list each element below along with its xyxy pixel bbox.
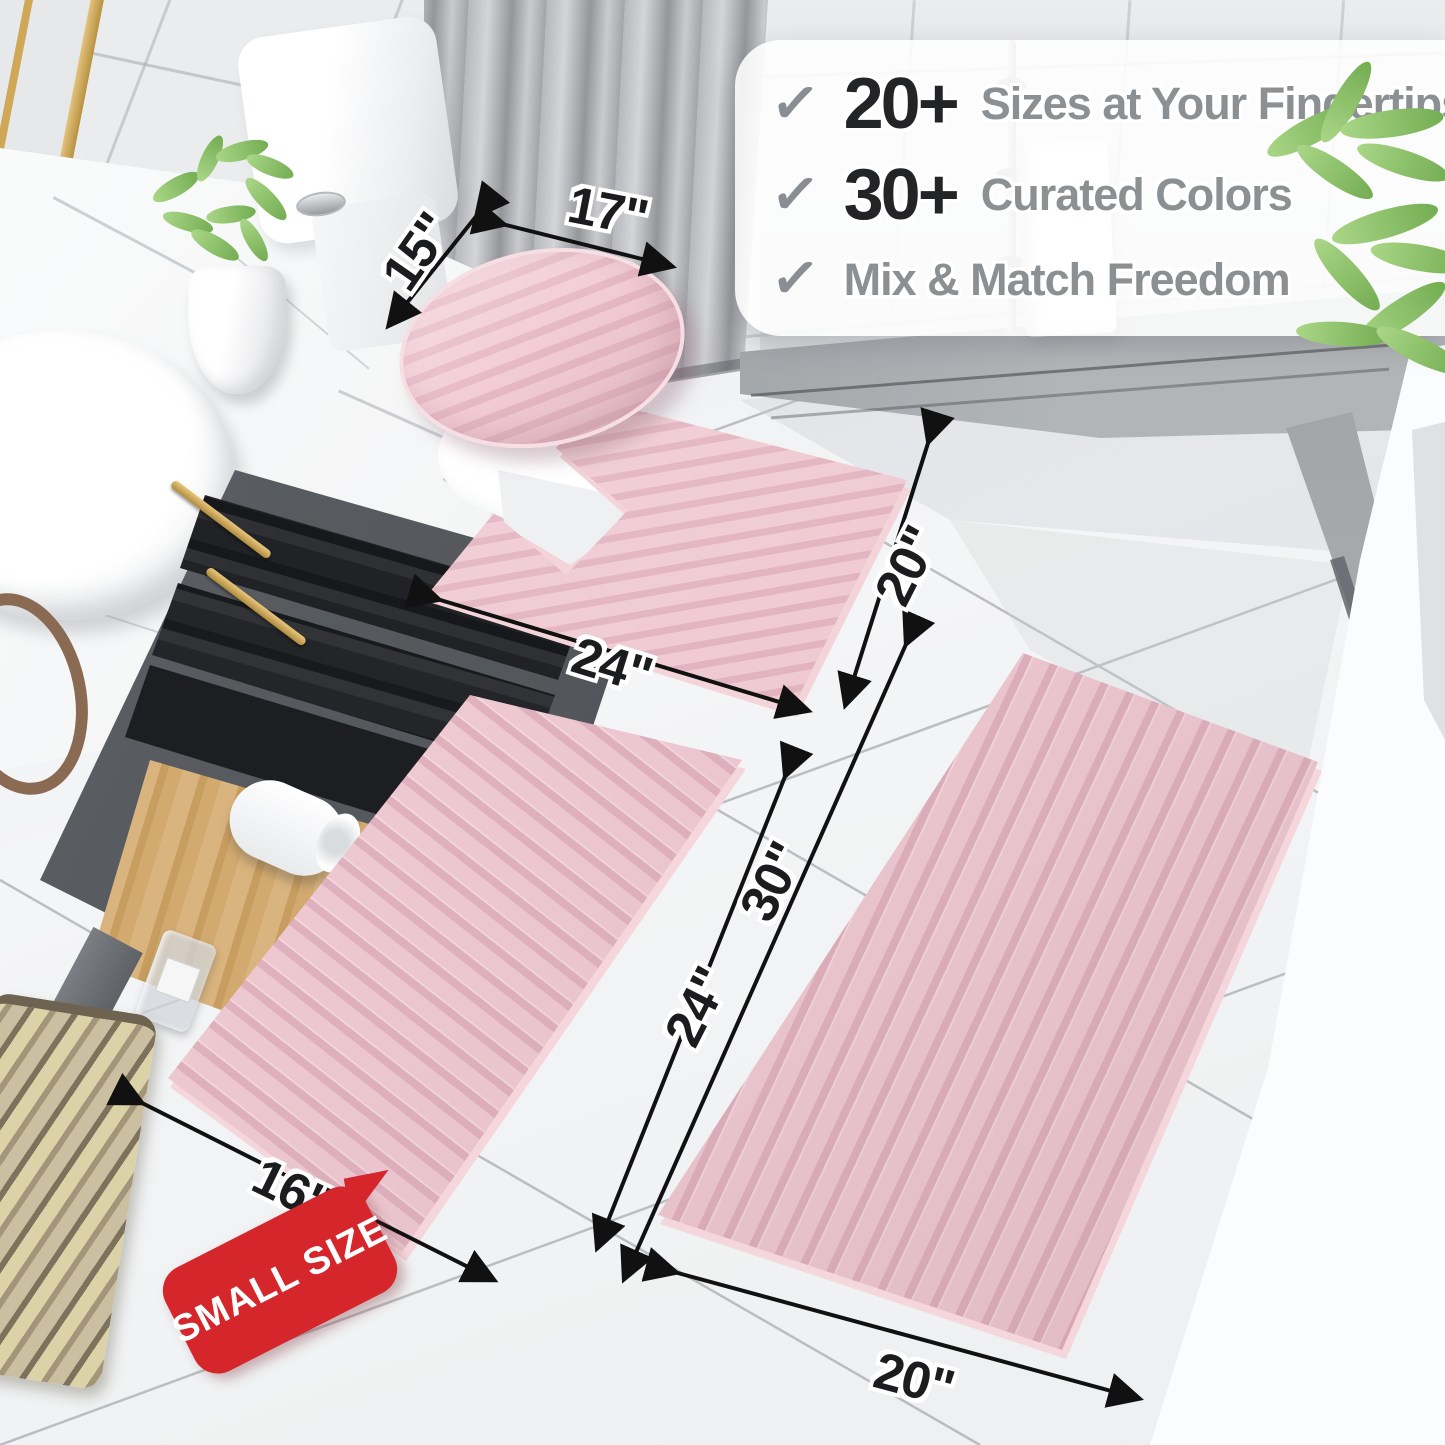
vanity-handle-top (170, 479, 273, 560)
rolled-towel (217, 767, 357, 888)
vanity-leg-right (378, 1051, 465, 1208)
vanity-leg-left (0, 927, 143, 1134)
toilet-bowl (438, 388, 658, 523)
product-image: ✓ 20+ Sizes at Your Fingertips ✓ 30+ Cur… (0, 0, 1445, 1445)
counter-plant-pot (188, 266, 286, 394)
dim-label-lid-length: 17" (563, 175, 652, 249)
rattan-hoop (0, 580, 106, 807)
tub-deck-streak-2 (771, 368, 1389, 420)
tub-deck-streak (751, 342, 1409, 397)
laundry-basket (0, 991, 159, 1391)
marble-vein-2 (230, 252, 369, 369)
check-icon: ✓ (768, 164, 822, 227)
toilet-flush-button (295, 189, 348, 220)
rolled-towel-end (307, 807, 369, 880)
dim-label-contour-width: 24" (565, 626, 659, 707)
marble-vein-4 (94, 611, 275, 672)
sink-basin (0, 330, 235, 620)
dim-label-large-width: 20" (868, 1341, 960, 1420)
dim-label-contour-depth: 20" (863, 517, 953, 615)
dim-label-small-length: 24" (653, 958, 743, 1056)
check-icon: ✓ (768, 248, 822, 311)
check-icon: ✓ (768, 72, 822, 135)
dim-label-lid-width: 15" (370, 202, 465, 302)
callout-stat: 20+ (844, 68, 957, 140)
mirror-gold-frame (0, 0, 108, 486)
marble-vein-5 (443, 477, 568, 565)
callout-label: Mix & Match Freedom (844, 256, 1290, 303)
vanity-handle-bottom (205, 566, 308, 647)
soap-bottle-label (155, 957, 201, 1003)
dim-label-large-length: 30" (728, 833, 818, 931)
marble-vein-3 (338, 389, 522, 473)
callout-label: Curated Colors (981, 171, 1292, 218)
wall-grout-h1 (0, 31, 455, 132)
mirror-gold-frame-outer (0, 0, 36, 397)
soap-bottle (134, 928, 218, 1034)
arrow-large-length (625, 642, 907, 1277)
badge-text: SMALL SIZE (165, 1207, 394, 1352)
callout-stat: 30+ (844, 159, 957, 231)
bathtub-inner-shadow (1120, 1090, 1445, 1445)
